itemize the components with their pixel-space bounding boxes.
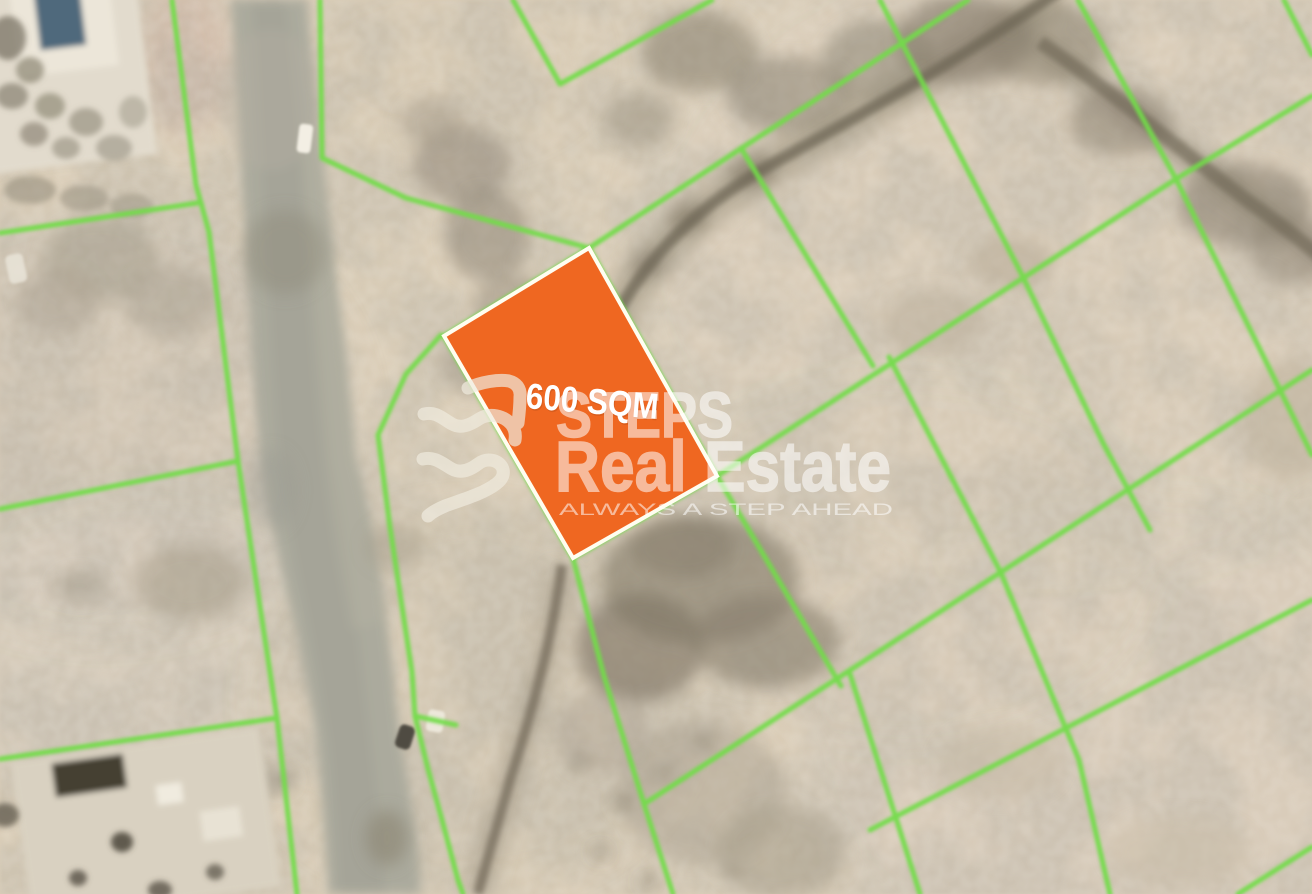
svg-text:ALWAYS A STEP AHEAD: ALWAYS A STEP AHEAD [559, 500, 893, 519]
svg-text:Real Estate: Real Estate [555, 428, 891, 507]
